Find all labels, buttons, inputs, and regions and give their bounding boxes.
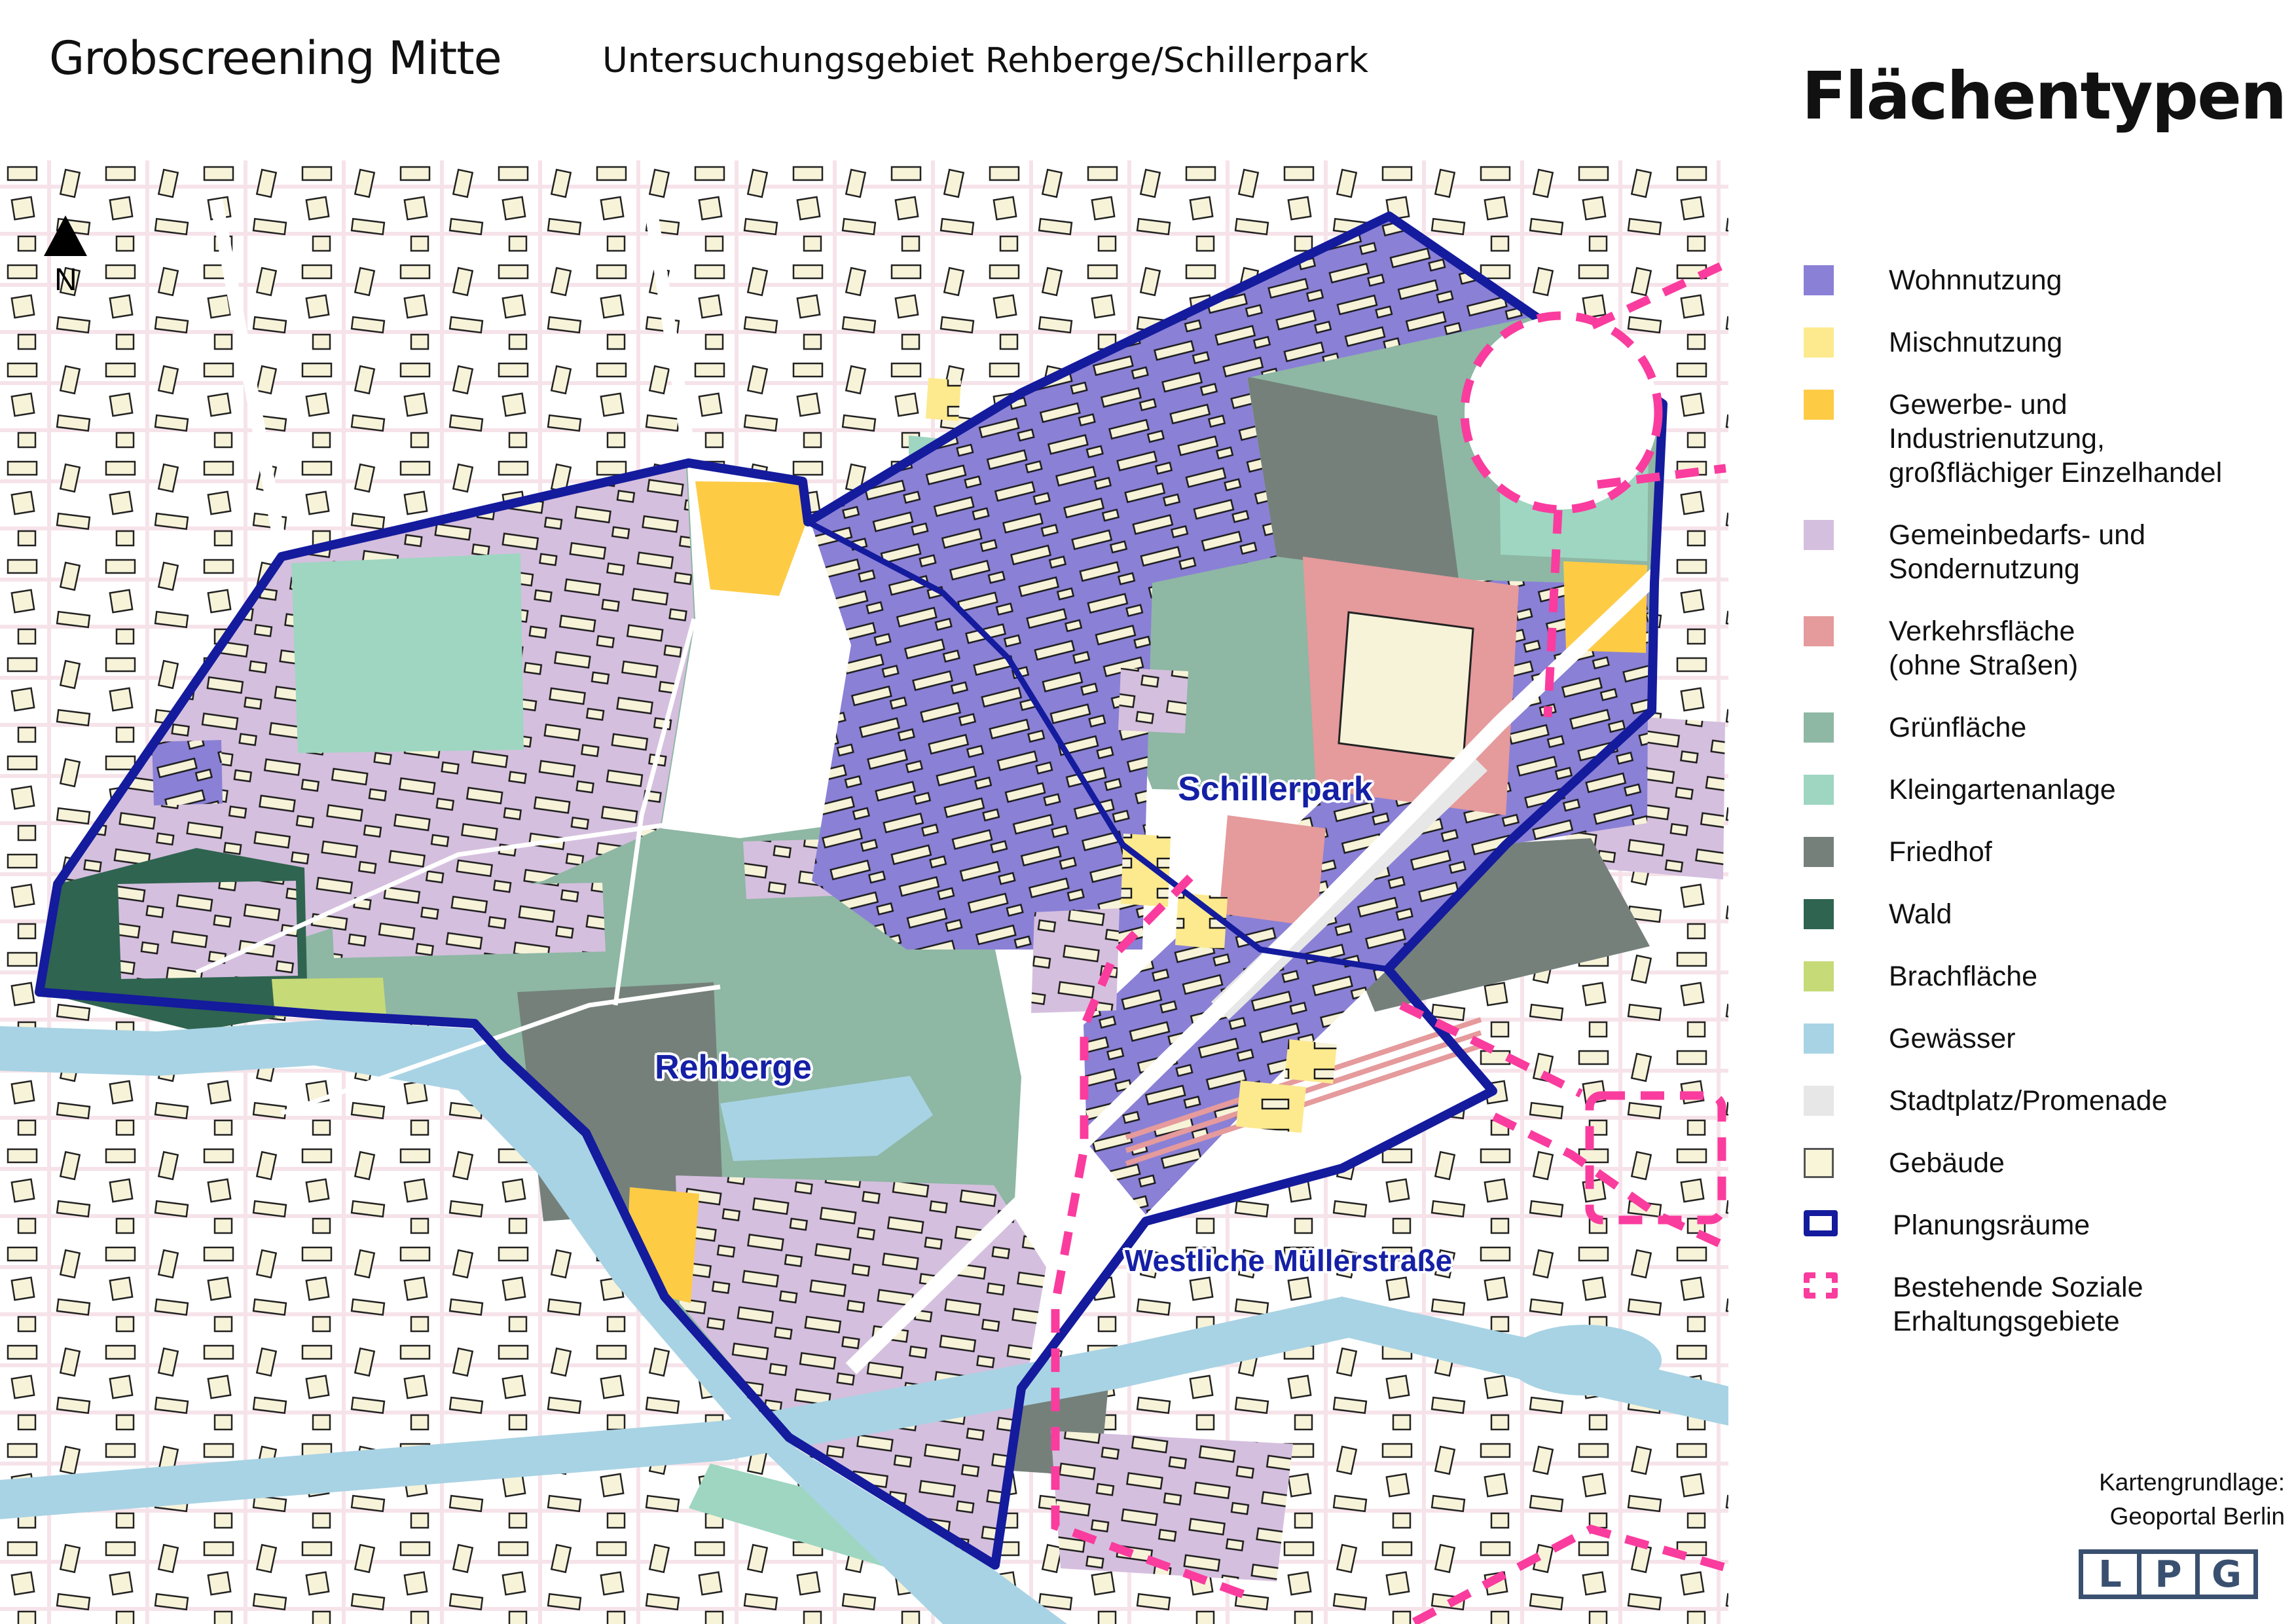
north-letter: N: [54, 263, 77, 297]
swatch-wald: [1804, 899, 1834, 929]
page-subtitle: Untersuchungsgebiet Rehberge/Schillerpar…: [602, 41, 1368, 81]
swatch-erhaltungsgebiete: [1804, 1272, 1838, 1299]
legend-item-wald: Wald: [1804, 897, 2275, 931]
credits-line2: Geoportal Berlin: [2099, 1500, 2285, 1534]
swatch-verkehrsflaeche: [1804, 616, 1834, 646]
map-label-schillerpark: Schillerpark: [1144, 769, 1406, 809]
legend-item-kleingartenanlage: Kleingartenanlage: [1804, 773, 2275, 807]
region-gemeinbedarf-mueller2: [1031, 908, 1120, 1013]
north-arrow: N: [36, 213, 95, 301]
region-misch-5: [926, 378, 961, 421]
legend-item-friedhof: Friedhof: [1804, 835, 2275, 869]
map-svg: [0, 160, 1728, 1624]
legend-item-gemeinbedarf: Gemeinbedarfs- und Sondernutzung: [1804, 518, 2275, 586]
legend-label: Gewerbe- und Industrienutzung, großfläch…: [1889, 388, 2222, 490]
logo-letter-l: L: [2083, 1554, 2141, 1595]
legend-label: Gebäude: [1889, 1146, 2005, 1180]
legend-item-gebaeude: Gebäude: [1804, 1146, 2275, 1180]
swatch-planungsraeume: [1804, 1210, 1838, 1236]
map-label-rehberge: Rehberge: [629, 1048, 838, 1087]
legend-item-stadtplatz: Stadtplatz/Promenade: [1804, 1084, 2275, 1118]
swatch-mischnutzung: [1804, 327, 1834, 358]
swatch-wohnnutzung: [1804, 265, 1834, 295]
swatch-brachflaeche: [1804, 961, 1834, 991]
map-canvas: [0, 160, 1728, 1624]
logo-letter-g: G: [2200, 1554, 2253, 1595]
legend-item-wohnnutzung: Wohnnutzung: [1804, 263, 2275, 297]
credits-line1: Kartengrundlage:: [2099, 1466, 2285, 1500]
swatch-stadtplatz: [1804, 1086, 1834, 1116]
swatch-gruenflaeche: [1804, 712, 1834, 743]
region-gemeinbedarf-southeast: [1051, 1431, 1293, 1581]
region-kleingarten-west: [291, 553, 524, 753]
region-wohnnutzung-west: [152, 740, 223, 805]
page: Grobscreening Mitte Untersuchungsgebiet …: [0, 0, 2296, 1624]
legend-label: Brachfläche: [1889, 959, 2037, 993]
legend-label: Friedhof: [1889, 835, 1992, 869]
legend-item-gruenflaeche: Grünfläche: [1804, 710, 2275, 745]
legend-item-erhaltungsgebiete: Bestehende Soziale Erhaltungsgebiete: [1804, 1270, 2275, 1338]
region-misch-4: [1236, 1080, 1306, 1133]
legend-label: Kleingartenanlage: [1889, 773, 2116, 807]
page-title: Grobscreening Mitte: [49, 31, 501, 85]
region-gemeinbedarf-in-wald: [118, 881, 298, 979]
building-stadion: [1339, 612, 1473, 760]
lpg-logo: L P G: [2079, 1549, 2258, 1599]
map-label-muellerstrasse: Westliche Müllerstraße: [1092, 1243, 1485, 1278]
region-misch-3: [1285, 1039, 1337, 1084]
legend: Wohnnutzung Mischnutzung Gewerbe- und In…: [1804, 263, 2275, 1367]
swatch-gebaeude: [1804, 1148, 1834, 1178]
legend-item-mischnutzung: Mischnutzung: [1804, 325, 2275, 360]
legend-label: Wald: [1889, 897, 1952, 931]
legend-label: Stadtplatz/Promenade: [1889, 1084, 2168, 1118]
swatch-kleingartenanlage: [1804, 775, 1834, 805]
region-gemeinbedarf-mueller1: [1118, 668, 1188, 733]
legend-item-gewerbe: Gewerbe- und Industrienutzung, großfläch…: [1804, 388, 2275, 490]
legend-label: Mischnutzung: [1889, 325, 2062, 360]
region-misch-1: [1121, 834, 1171, 907]
swatch-friedhof: [1804, 837, 1834, 867]
region-gewerbe-2: [1563, 561, 1647, 653]
legend-label: Planungsräume: [1893, 1208, 2090, 1242]
swatch-gewerbe: [1804, 390, 1834, 420]
canal-basin: [1507, 1325, 1662, 1395]
legend-label: Gewässer: [1889, 1022, 2016, 1056]
legend-item-gewaesser: Gewässer: [1804, 1022, 2275, 1056]
swatch-gewaesser: [1804, 1024, 1834, 1054]
swatch-gemeinbedarf: [1804, 520, 1834, 550]
legend-title: Flächentypen: [1802, 58, 2286, 134]
legend-label: Gemeinbedarfs- und Sondernutzung: [1889, 518, 2145, 586]
legend-label: Grünfläche: [1889, 710, 2026, 745]
north-arrow-icon: [44, 215, 87, 256]
legend-label: Wohnnutzung: [1889, 263, 2062, 297]
legend-item-verkehrsflaeche: Verkehrsfläche (ohne Straßen): [1804, 614, 2275, 682]
legend-label: Bestehende Soziale Erhaltungsgebiete: [1893, 1270, 2143, 1338]
logo-letter-p: P: [2141, 1554, 2200, 1595]
legend-item-planungsraeume: Planungsräume: [1804, 1208, 2275, 1242]
legend-label: Verkehrsfläche (ohne Straßen): [1889, 614, 2078, 682]
map-credits: Kartengrundlage: Geoportal Berlin: [2099, 1466, 2285, 1534]
legend-item-brachflaeche: Brachfläche: [1804, 959, 2275, 993]
